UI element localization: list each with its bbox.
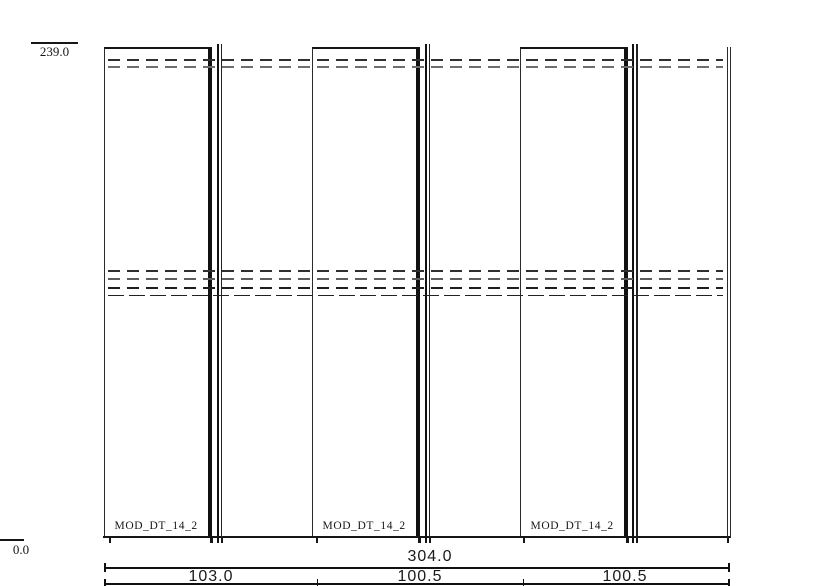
witness-tick	[727, 538, 729, 543]
dimension-segment-2-value: 100.5	[380, 569, 460, 585]
level-marker-bottom-label: 0.0	[2, 543, 40, 556]
dimension-segment-3-value: 100.5	[585, 569, 665, 585]
right-edge-line	[727, 47, 729, 538]
level-marker-bottom-line	[0, 539, 24, 541]
dimension-tick	[728, 563, 730, 572]
witness-tick	[429, 538, 431, 543]
mullion-post-3-line	[632, 44, 634, 543]
witness-tick	[210, 538, 213, 543]
module-panel-3: MOD_DT_14_2	[520, 47, 628, 536]
cad-elevation-drawing: 239.0 0.0 MOD_DT_14_2 MOD_DT_14_2 MOD_DT…	[0, 0, 835, 586]
mullion-post-2-line	[425, 44, 427, 543]
level-marker-top-label: 239.0	[29, 45, 80, 58]
hidden-rail-dashed-line	[108, 59, 723, 61]
witness-tick	[636, 538, 638, 543]
hidden-rail-dashed-line	[108, 295, 723, 297]
dimension-tick	[104, 563, 106, 572]
dimension-tick	[523, 579, 525, 586]
hidden-rail-dashed-line	[108, 66, 723, 68]
witness-tick	[626, 538, 629, 543]
module-panel-2: MOD_DT_14_2	[312, 47, 420, 536]
hidden-rail-dashed-line	[108, 287, 723, 289]
witness-tick	[221, 538, 223, 543]
right-edge-line	[730, 47, 732, 538]
dimension-overall-value: 304.0	[390, 549, 470, 565]
witness-tick	[109, 538, 111, 543]
hidden-rail-dashed-line	[108, 278, 723, 280]
module-1-label: MOD_DT_14_2	[115, 520, 198, 532]
mullion-post-1-line	[221, 44, 223, 543]
dimension-tick	[104, 579, 106, 586]
mullion-post-2-line	[429, 44, 431, 543]
module-3-label: MOD_DT_14_2	[531, 520, 614, 532]
dimension-tick	[317, 579, 319, 586]
dimension-tick	[728, 579, 730, 586]
mullion-post-1-line	[217, 44, 219, 543]
witness-tick	[523, 538, 525, 543]
module-panel-1: MOD_DT_14_2	[104, 47, 212, 536]
witness-tick	[316, 538, 318, 543]
mullion-post-3-line	[636, 44, 638, 543]
module-2-label: MOD_DT_14_2	[323, 520, 406, 532]
dimension-segment-1-value: 103.0	[171, 569, 251, 585]
witness-tick	[418, 538, 421, 543]
hidden-rail-dashed-line	[108, 270, 723, 272]
